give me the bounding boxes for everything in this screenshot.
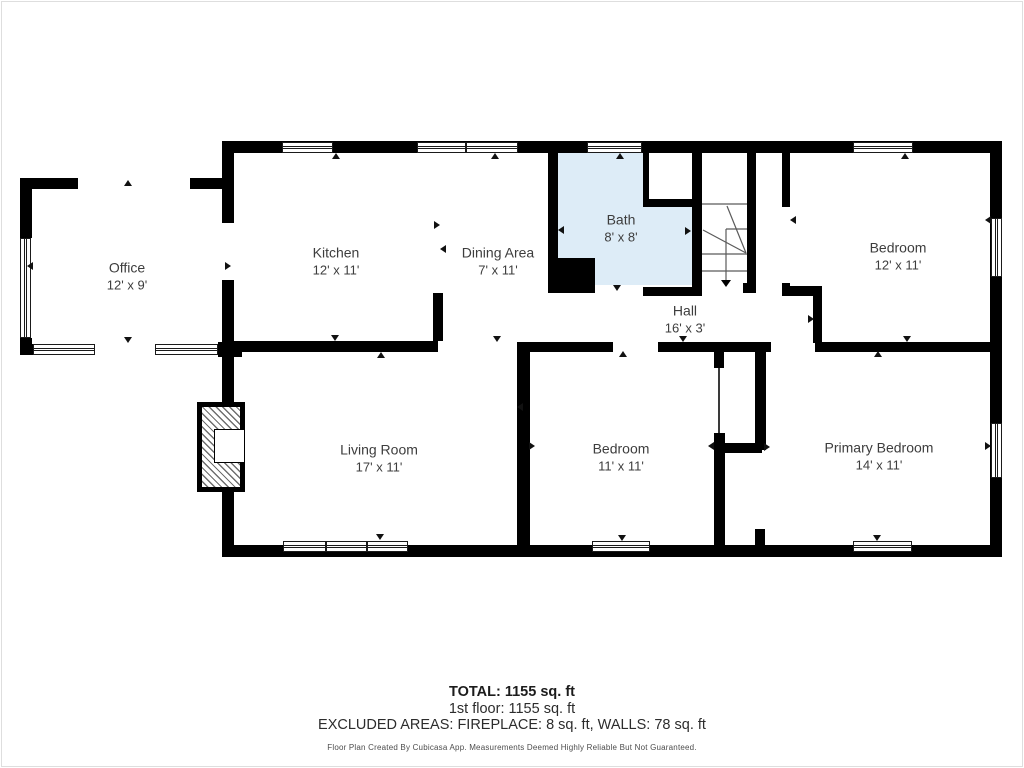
wall <box>433 293 443 341</box>
bath-closet-notch <box>649 153 692 199</box>
fireplace-icon <box>197 402 245 492</box>
opening-marker-icon <box>558 226 564 234</box>
window-icon <box>326 541 367 552</box>
opening-marker-icon <box>901 153 909 159</box>
wall <box>815 342 995 352</box>
window-icon <box>853 541 912 552</box>
opening-marker-icon <box>685 227 691 235</box>
window-icon <box>283 541 326 552</box>
firebox <box>214 429 245 463</box>
window-icon <box>587 142 642 153</box>
window-icon <box>853 142 913 153</box>
room-label: Dining Area7' x 11' <box>462 244 534 279</box>
window-glazing-lines <box>467 146 517 149</box>
window-icon <box>367 541 408 552</box>
opening-marker-icon <box>903 336 911 342</box>
room-label: Bedroom12' x 11' <box>870 239 927 274</box>
room-label: Primary Bedroom14' x 11' <box>825 439 934 474</box>
room-dimensions: 16' x 3' <box>665 320 705 337</box>
window-icon <box>33 344 95 355</box>
window-icon <box>592 541 650 552</box>
room-name: Primary Bedroom <box>825 439 934 457</box>
wall <box>714 453 725 545</box>
first-floor-text: 1st floor: 1155 sq. ft <box>0 701 1024 717</box>
opening-marker-icon <box>124 180 132 186</box>
room-dimensions: 7' x 11' <box>462 262 534 279</box>
wall <box>643 287 702 296</box>
window-icon <box>155 344 218 355</box>
room-label: Office12' x 9' <box>107 259 147 294</box>
room-dimensions: 12' x 11' <box>313 262 360 279</box>
room-dimensions: 12' x 11' <box>870 257 927 274</box>
opening-marker-icon <box>529 442 535 450</box>
opening-marker-icon <box>616 153 624 159</box>
window-glazing-lines <box>995 219 998 276</box>
wall <box>692 153 702 292</box>
opening-marker-icon <box>874 351 882 357</box>
wall <box>548 153 558 258</box>
opening-marker-icon <box>613 285 621 291</box>
room-dimensions: 12' x 9' <box>107 277 147 294</box>
disclaimer-text: Floor Plan Created By Cubicasa App. Meas… <box>0 743 1024 753</box>
wall <box>643 153 649 199</box>
opening-marker-icon <box>124 337 132 343</box>
image-border <box>1 1 1023 767</box>
room-label: Bath8' x 8' <box>604 211 637 246</box>
wall <box>548 258 595 293</box>
opening-marker-icon <box>331 335 339 341</box>
wall <box>222 341 438 352</box>
opening-marker-icon <box>332 153 340 159</box>
opening-marker-icon <box>618 535 626 541</box>
room-name: Bath <box>604 211 637 229</box>
opening-marker-icon <box>493 336 501 342</box>
room-label: Bedroom11' x 11' <box>593 440 650 475</box>
wall <box>714 352 724 368</box>
window-icon <box>991 218 1002 277</box>
opening-marker-icon <box>808 315 814 323</box>
window-glazing-lines <box>283 146 332 149</box>
room-name: Bedroom <box>593 440 650 458</box>
room-name: Office <box>107 259 147 277</box>
opening-marker-icon <box>708 442 714 450</box>
wall <box>20 178 32 238</box>
opening-marker-icon <box>27 262 33 270</box>
opening-marker-icon <box>225 262 231 270</box>
room-dimensions: 14' x 11' <box>825 457 934 474</box>
window-icon <box>991 423 1002 478</box>
room-name: Bedroom <box>870 239 927 257</box>
wall <box>755 342 766 450</box>
opening-marker-icon <box>440 245 446 253</box>
opening-marker-icon <box>985 216 991 224</box>
opening-marker-icon <box>985 442 991 450</box>
room-name: Living Room <box>340 441 418 459</box>
room-label: Living Room17' x 11' <box>340 441 418 476</box>
wall <box>755 529 765 545</box>
window-glazing-lines <box>588 146 641 149</box>
opening-marker-icon <box>619 351 627 357</box>
total-area-text: TOTAL: 1155 sq. ft <box>0 684 1024 701</box>
window-icon <box>466 142 518 153</box>
wall <box>190 178 224 189</box>
opening-marker-icon <box>491 153 499 159</box>
window-glazing-lines <box>156 348 217 351</box>
opening-marker-icon <box>517 403 523 411</box>
window-icon <box>282 142 333 153</box>
stairs-symbol <box>0 0 1024 768</box>
wall <box>747 153 756 292</box>
wall <box>643 199 702 207</box>
opening-marker-icon <box>679 336 687 342</box>
thin-wall <box>718 368 720 433</box>
wall <box>743 283 756 293</box>
window-icon <box>417 142 466 153</box>
room-dimensions: 8' x 8' <box>604 229 637 246</box>
wall <box>517 342 613 352</box>
window-glazing-lines <box>327 545 366 548</box>
room-label: Kitchen12' x 11' <box>313 244 360 279</box>
area-summary: TOTAL: 1155 sq. ft 1st floor: 1155 sq. f… <box>0 684 1024 753</box>
room-name: Hall <box>665 302 705 320</box>
opening-marker-icon <box>434 221 440 229</box>
opening-marker-icon <box>377 352 385 358</box>
window-glazing-lines <box>24 239 27 337</box>
window-glazing-lines <box>284 545 325 548</box>
opening-marker-icon <box>764 443 770 451</box>
opening-marker-icon <box>873 535 881 541</box>
window-icon <box>20 238 31 338</box>
window-glazing-lines <box>34 348 94 351</box>
room-dimensions: 17' x 11' <box>340 459 418 476</box>
wall <box>20 344 33 355</box>
room-name: Kitchen <box>313 244 360 262</box>
window-glazing-lines <box>593 545 649 548</box>
opening-marker-icon <box>376 534 384 540</box>
floor-plan: Office12' x 9'Kitchen12' x 11'Dining Are… <box>0 0 1024 768</box>
window-glazing-lines <box>368 545 407 548</box>
window-glazing-lines <box>418 146 465 149</box>
room-dimensions: 11' x 11' <box>593 458 650 475</box>
window-glazing-lines <box>854 545 911 548</box>
room-label: Hall16' x 3' <box>665 302 705 337</box>
room-name: Dining Area <box>462 244 534 262</box>
window-glazing-lines <box>995 424 998 477</box>
wall <box>813 295 822 343</box>
window-glazing-lines <box>854 146 912 149</box>
opening-marker-icon <box>790 216 796 224</box>
wall <box>782 153 790 207</box>
excluded-areas-text: EXCLUDED AREAS: FIREPLACE: 8 sq. ft, WAL… <box>0 717 1024 734</box>
